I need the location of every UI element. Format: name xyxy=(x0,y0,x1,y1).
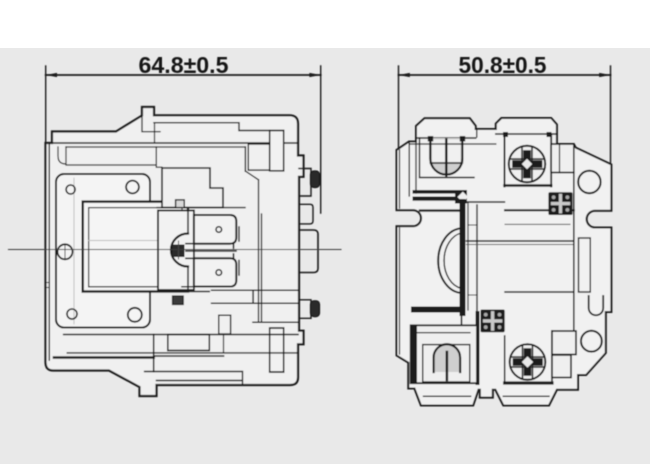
svg-text:64.8±0.5: 64.8±0.5 xyxy=(139,52,229,78)
svg-text:50.8±0.5: 50.8±0.5 xyxy=(459,52,547,78)
